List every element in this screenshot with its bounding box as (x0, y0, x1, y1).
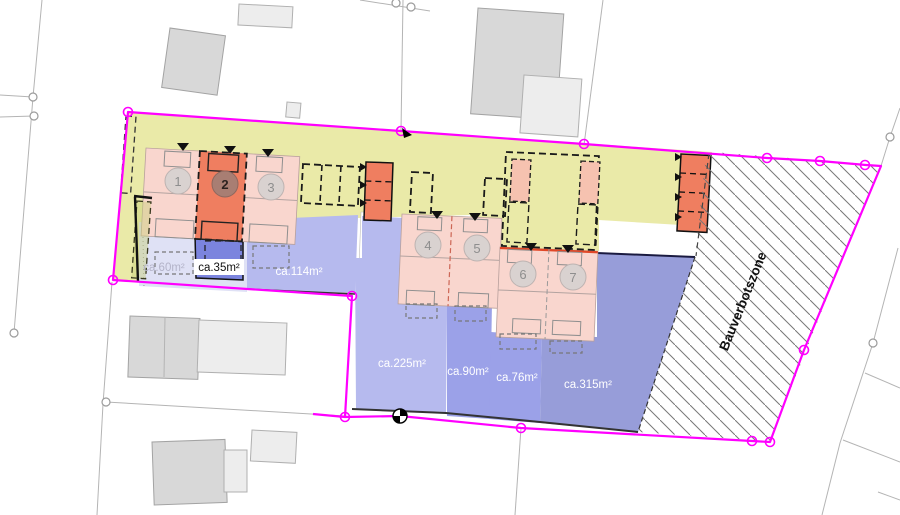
bg-building (286, 102, 301, 118)
site-plan-drawing: 1 2 3 4 5 6 7 ca.60m² ca.35m² (0, 0, 900, 515)
svg-text:7: 7 (569, 270, 576, 285)
svg-text:6: 6 (519, 267, 526, 282)
bg-building (224, 450, 247, 492)
bg-building (520, 75, 582, 137)
unit-badge-1: 1 (165, 168, 191, 194)
white-gap-right (599, 220, 681, 258)
bg-building (238, 4, 293, 28)
label-ca114: ca.114m² (275, 266, 322, 278)
label-ca60: ca.60m² (143, 262, 185, 274)
garage-row-middle (364, 162, 393, 221)
svg-text:5: 5 (473, 241, 480, 256)
unit-badge-4: 4 (415, 232, 441, 258)
label-ca315: ca.315m² (564, 379, 612, 391)
unit-badge-2: 2 (212, 171, 238, 197)
label-ca76: ca.76m² (496, 372, 538, 384)
label-ca90: ca.90m² (447, 366, 489, 378)
unit-badge-3: 3 (258, 174, 284, 200)
site-plan-canvas: 1 2 3 4 5 6 7 ca.60m² ca.35m² (0, 0, 900, 515)
bg-building (197, 320, 287, 375)
label-ca35: ca.35m² (198, 262, 240, 274)
bg-building (152, 439, 227, 505)
garden-ca90 (447, 300, 492, 419)
survey-benchmark-icon (393, 409, 407, 423)
bg-building (162, 28, 226, 95)
svg-text:2: 2 (221, 177, 228, 192)
svg-text:1: 1 (174, 174, 181, 189)
house-block-3 (496, 247, 598, 341)
bg-building (250, 430, 297, 463)
unit-badge-6: 6 (510, 261, 536, 287)
label-ca225: ca.225m² (378, 358, 426, 370)
unit-badge-5: 5 (464, 235, 490, 261)
house-block-2 (398, 214, 502, 308)
svg-text:4: 4 (424, 238, 431, 253)
svg-text:3: 3 (267, 180, 274, 195)
unit-badge-7: 7 (560, 264, 586, 290)
